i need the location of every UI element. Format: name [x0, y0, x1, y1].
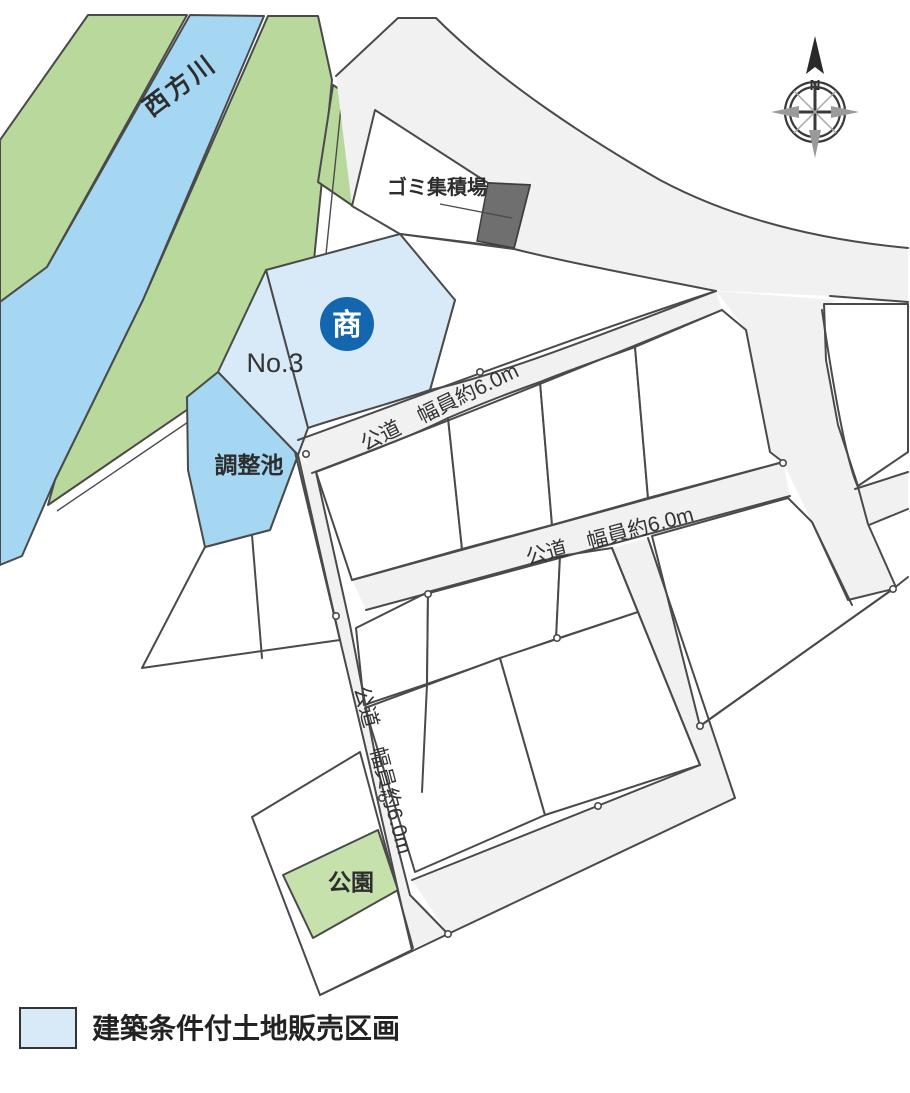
legend-swatch: [20, 1008, 76, 1048]
park-label: 公園: [328, 869, 374, 895]
commercial-marker: 商: [320, 297, 374, 351]
legend: 建築条件付土地販売区画: [20, 1008, 400, 1048]
compass-rose: N: [771, 36, 859, 158]
compass-north-arrow: [806, 36, 824, 74]
garbage-site-label: ゴミ集積場: [387, 175, 487, 199]
retention-pond-label: 調整池: [215, 452, 284, 478]
subdivision-map-svg: 西方川 ゴミ集積場 商 No.3 調整池 公道 幅員約6.0m 公道 幅員約6.…: [0, 0, 910, 1093]
commercial-marker-label: 商: [332, 309, 362, 342]
legend-label: 建築条件付土地販売区画: [92, 1012, 400, 1044]
compass-south-arrow: [809, 130, 821, 158]
subdivision-map-page: 西方川 ゴミ集積場 商 No.3 調整池 公道 幅員約6.0m 公道 幅員約6.…: [0, 0, 910, 1093]
plot-no3-label: No.3: [246, 348, 303, 378]
